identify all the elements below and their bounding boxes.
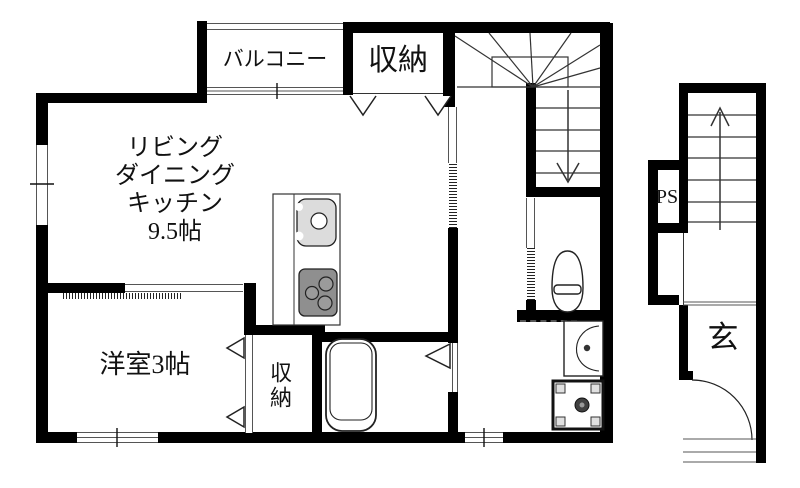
room-label-storage-top: 収納 bbox=[353, 44, 443, 78]
stair-landing-lines bbox=[683, 302, 756, 305]
ldk-line-3: キッチン bbox=[95, 190, 255, 218]
room-label-western-room: 洋室3帖 bbox=[60, 350, 230, 380]
door-swing-arc bbox=[692, 380, 752, 440]
washing-machine-pan bbox=[553, 381, 603, 429]
porch-step-lines bbox=[683, 439, 756, 462]
bathtub bbox=[326, 339, 376, 431]
floor-plan: バルコニー 収納 リビング ダイニング キッチン 9.5帖 洋室3帖 収納 PS… bbox=[0, 0, 800, 488]
room-label-balcony: バルコニー bbox=[213, 47, 337, 71]
stove-burners bbox=[299, 269, 337, 316]
room-label-ldk: リビング ダイニング キッチン 9.5帖 bbox=[95, 134, 255, 246]
ldk-line-1: リビング bbox=[95, 134, 255, 162]
toilet bbox=[552, 251, 583, 312]
stairs-up-arrow bbox=[711, 108, 729, 230]
ldk-line-4: 9.5帖 bbox=[95, 218, 255, 246]
stair-treads-external bbox=[688, 115, 756, 222]
room-label-pipe-space: PS bbox=[650, 185, 684, 209]
bathroom-door-arrow bbox=[426, 344, 450, 368]
stair-winder-fan bbox=[455, 33, 600, 87]
folding-door-arrow bbox=[350, 96, 451, 115]
room-label-entrance: 玄 bbox=[705, 320, 741, 356]
washbasin bbox=[564, 321, 603, 376]
ldk-line-2: ダイニング bbox=[95, 162, 255, 190]
kitchen-sink bbox=[295, 199, 337, 246]
room-label-storage-bottom: 収納 bbox=[269, 356, 295, 416]
stairs-down-arrow bbox=[557, 90, 579, 182]
